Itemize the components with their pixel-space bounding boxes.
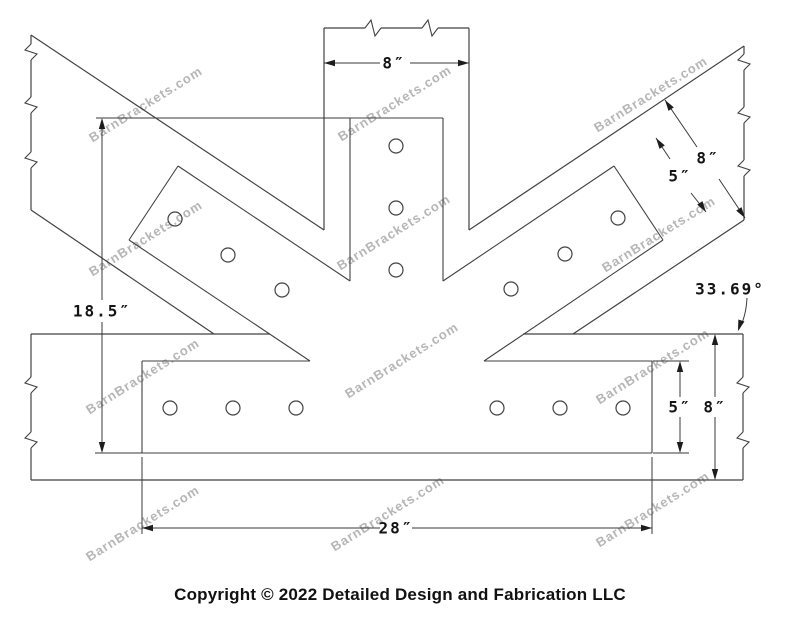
break-mark-icon (365, 20, 381, 36)
dimension-arrow-icon (641, 525, 652, 531)
dimension-arrow-icon (736, 207, 747, 220)
bolt-hole (616, 401, 630, 415)
dimension-arrow-icon (324, 60, 335, 66)
watermark-text: BarnBrackets.com (83, 482, 202, 564)
bolt-hole (275, 283, 289, 297)
steel-plate-outline (129, 118, 663, 453)
dimension-label: 18.5″ (73, 302, 131, 321)
bolt-hole (389, 139, 403, 153)
break-mark-icon (737, 377, 749, 393)
bolt-hole (611, 211, 625, 225)
bolt-hole (289, 401, 303, 415)
copyright-text: Copyright © 2022 Detailed Design and Fab… (0, 585, 800, 605)
break-mark-icon (25, 377, 37, 393)
watermark-text: BarnBrackets.com (334, 191, 453, 273)
break-mark-icon (738, 160, 750, 176)
dimension-label: 8″ (696, 149, 719, 168)
dimension: 28″ (142, 457, 652, 538)
bolt-hole (553, 401, 567, 415)
dimension-arrow-icon (653, 136, 664, 149)
dimension-label: 5″ (668, 398, 691, 417)
angle-dimension: 33.69° (695, 280, 765, 332)
dimension-arrow-icon (677, 442, 683, 453)
dimension: 8″ (703, 334, 726, 480)
dimension-arrow-icon (458, 60, 469, 66)
bolt-hole (490, 401, 504, 415)
dimension-arrow-icon (712, 334, 718, 345)
dimension-arrow-icon (712, 469, 718, 480)
dimension-arrow-icon (99, 442, 105, 453)
watermark-text: BarnBrackets.com (593, 325, 712, 407)
dimension-label: 8″ (382, 54, 405, 73)
break-mark-icon (25, 97, 37, 113)
bolt-hole (558, 247, 572, 261)
bolt-hole (226, 401, 240, 415)
watermark-layer: BarnBrackets.comBarnBrackets.comBarnBrac… (83, 53, 718, 564)
watermark-text: BarnBrackets.com (83, 335, 202, 417)
watermark-text: BarnBrackets.com (328, 472, 447, 554)
watermark-text: BarnBrackets.com (342, 319, 461, 401)
dimension: 5″ (653, 361, 692, 453)
angle-dimension-label: 33.69° (695, 280, 765, 299)
break-mark-icon (738, 107, 750, 123)
break-mark-icon (738, 54, 750, 70)
bolt-hole (389, 201, 403, 215)
drawing-page: BarnBrackets.comBarnBrackets.comBarnBrac… (0, 0, 800, 618)
bolt-hole (389, 263, 403, 277)
dimension-label: 28″ (379, 519, 414, 538)
bolt-hole (163, 401, 177, 415)
break-mark-icon (422, 20, 438, 36)
bolt-holes (163, 139, 630, 415)
watermark-text: BarnBrackets.com (86, 63, 205, 145)
dimension-label: 8″ (703, 398, 726, 417)
bolt-hole (221, 248, 235, 262)
watermark-text: BarnBrackets.com (335, 62, 454, 144)
watermark-text: BarnBrackets.com (86, 197, 205, 279)
dimension-label: 5″ (668, 167, 691, 186)
watermark-text: BarnBrackets.com (591, 53, 710, 135)
dimension-arrow-icon (677, 361, 683, 372)
break-mark-icon (25, 152, 37, 168)
break-mark-icon (25, 44, 37, 60)
dimension-arrow-icon (735, 320, 744, 332)
bolt-hole (504, 282, 518, 296)
bracket-technical-drawing: BarnBrackets.comBarnBrackets.comBarnBrac… (0, 0, 800, 618)
break-mark-icon (737, 432, 749, 448)
dimension: 18.5″ (73, 118, 350, 453)
break-mark-icon (25, 432, 37, 448)
